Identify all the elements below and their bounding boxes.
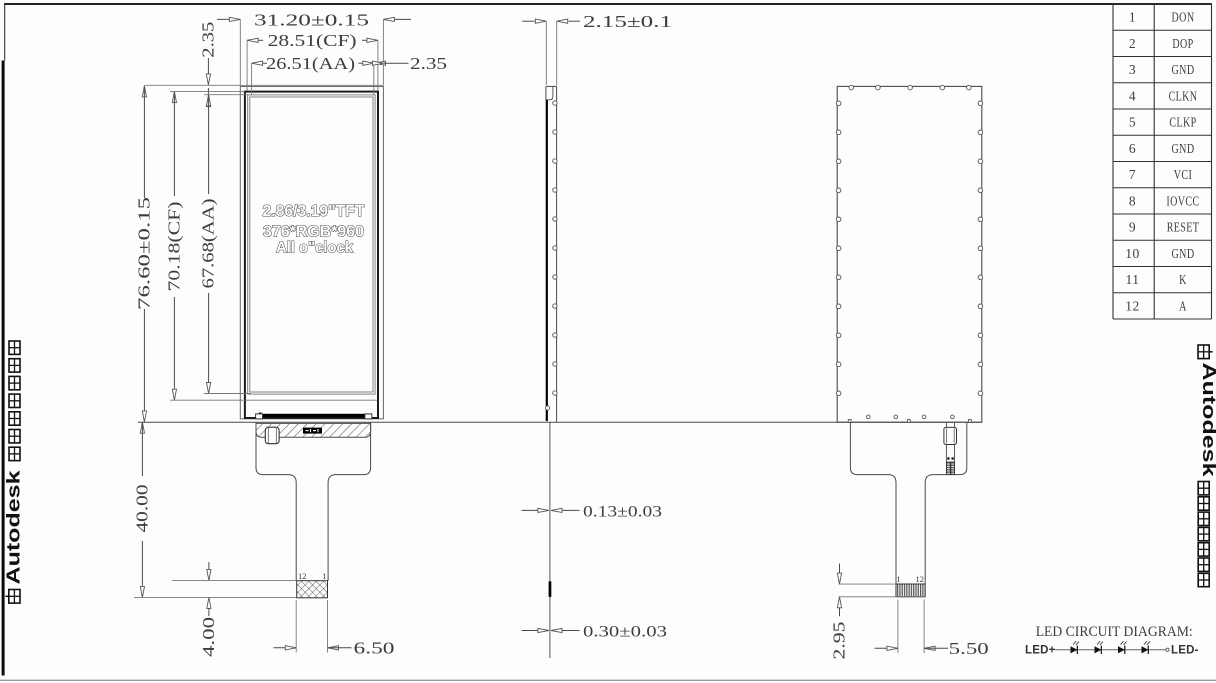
svg-text:76.60±0.15: 76.60±0.15 (134, 197, 153, 310)
svg-text:6.50: 6.50 (354, 639, 395, 658)
svg-text:GND: GND (1172, 245, 1195, 261)
svg-text:10: 10 (1125, 246, 1140, 261)
svg-text:A: A (1179, 298, 1187, 314)
svg-text:LED CIRCUIT DIAGRAM:: LED CIRCUIT DIAGRAM: (1036, 624, 1193, 640)
svg-text:9: 9 (1129, 220, 1136, 235)
svg-text:2: 2 (1129, 36, 1136, 51)
svg-text:K: K (1179, 272, 1187, 288)
svg-text:2.35: 2.35 (198, 22, 217, 58)
svg-text:11: 11 (1126, 272, 1140, 287)
svg-text:7: 7 (1129, 167, 1136, 182)
svg-text:5.50: 5.50 (949, 639, 989, 658)
svg-text:1: 1 (322, 571, 326, 581)
svg-text:GND: GND (1172, 62, 1195, 78)
svg-text:CLKN: CLKN (1169, 88, 1198, 104)
svg-text:0.13±0.03: 0.13±0.03 (583, 503, 662, 520)
svg-text:8: 8 (1129, 193, 1136, 208)
svg-text:RESET: RESET (1167, 219, 1200, 235)
svg-text:4.00: 4.00 (199, 617, 218, 657)
svg-text:VCI: VCI (1174, 167, 1192, 183)
svg-text:1: 1 (1129, 10, 1136, 25)
svg-text:6: 6 (1129, 141, 1136, 156)
svg-text:2.95: 2.95 (829, 622, 848, 660)
svg-text:67.68(AA): 67.68(AA) (199, 199, 218, 289)
svg-text:Autodesk: Autodesk (1199, 363, 1216, 478)
svg-text:GND: GND (1172, 140, 1195, 156)
svg-text:3: 3 (1129, 62, 1136, 77)
svg-text:4: 4 (1129, 88, 1136, 103)
svg-text:12: 12 (1125, 298, 1140, 313)
svg-text:LED+: LED+ (1025, 645, 1056, 657)
svg-text:40.00: 40.00 (132, 485, 151, 533)
svg-text:26.51(AA): 26.51(AA) (266, 54, 355, 73)
svg-text:2.35: 2.35 (410, 54, 447, 73)
svg-text:0.30±0.03: 0.30±0.03 (583, 623, 667, 640)
svg-text:5: 5 (1129, 115, 1136, 130)
svg-text:70.18(CF): 70.18(CF) (164, 202, 183, 292)
svg-text:2.15±0.1: 2.15±0.1 (583, 12, 672, 31)
svg-text:31.20±0.15: 31.20±0.15 (254, 10, 369, 29)
svg-text:LED-: LED- (1171, 645, 1199, 657)
svg-text:12: 12 (916, 574, 925, 584)
svg-text:DOP: DOP (1172, 35, 1193, 51)
svg-text:All o"clock: All o"clock (276, 240, 353, 257)
svg-text:Autodesk: Autodesk (4, 469, 24, 584)
svg-text:IOVCC: IOVCC (1166, 193, 1199, 209)
svg-text:376*RGB*960: 376*RGB*960 (263, 224, 364, 241)
svg-text:CLKP: CLKP (1169, 114, 1196, 130)
svg-text:12: 12 (298, 571, 307, 581)
svg-text:2.86/3.19"TFT: 2.86/3.19"TFT (263, 203, 366, 220)
svg-text:1: 1 (896, 574, 900, 584)
svg-text:DON: DON (1172, 9, 1195, 25)
svg-text:28.51(CF): 28.51(CF) (268, 31, 357, 50)
